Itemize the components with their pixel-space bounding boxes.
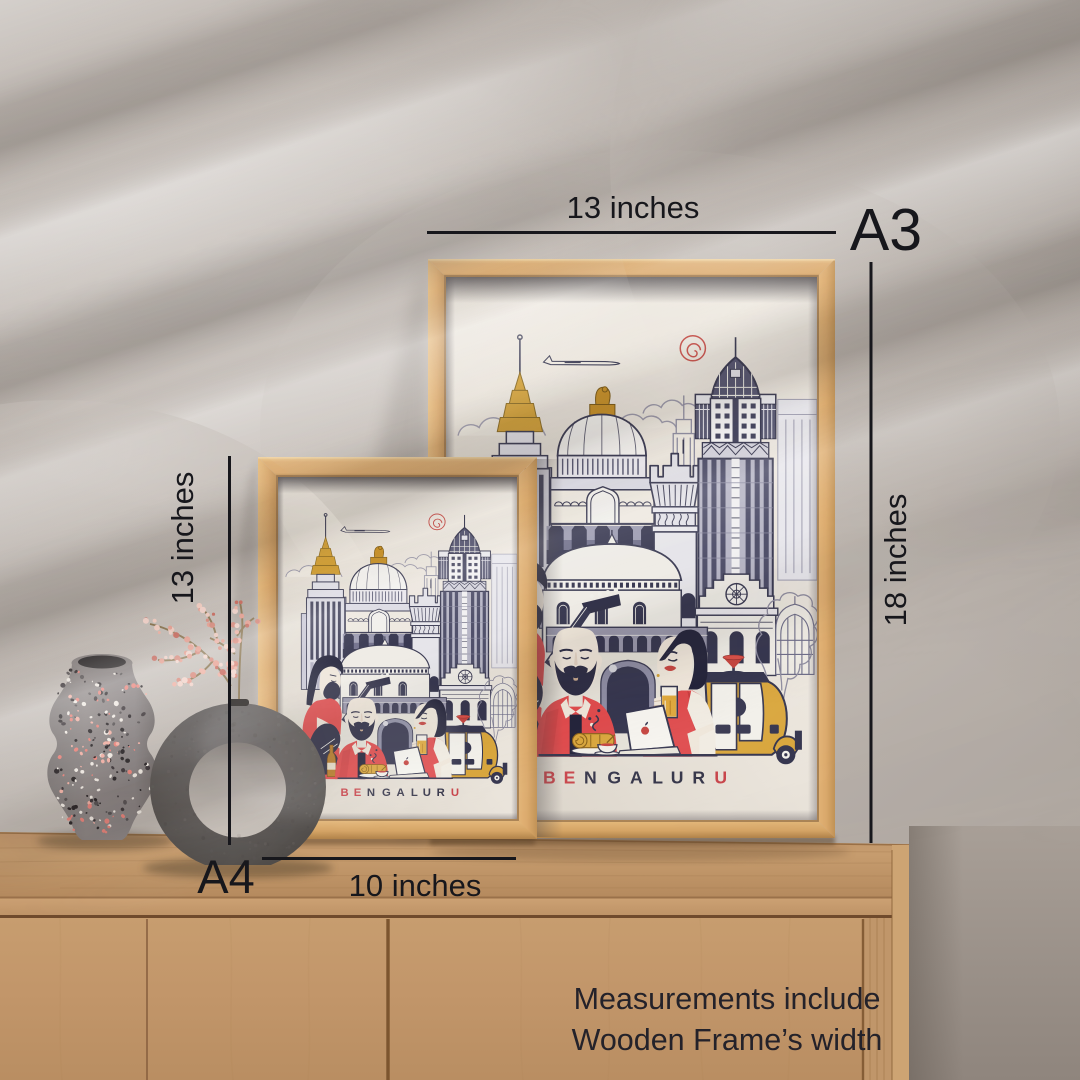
- svg-text:Wooden Frame’s width: Wooden Frame’s width: [572, 1023, 883, 1057]
- svg-text:13 inches: 13 inches: [567, 190, 700, 225]
- svg-text:Measurements include: Measurements include: [574, 982, 881, 1016]
- svg-text:A3: A3: [850, 197, 922, 263]
- svg-text:A4: A4: [197, 850, 255, 903]
- svg-text:10 inches: 10 inches: [349, 868, 482, 903]
- svg-text:13 inches: 13 inches: [165, 472, 200, 605]
- svg-text:18 inches: 18 inches: [878, 494, 913, 627]
